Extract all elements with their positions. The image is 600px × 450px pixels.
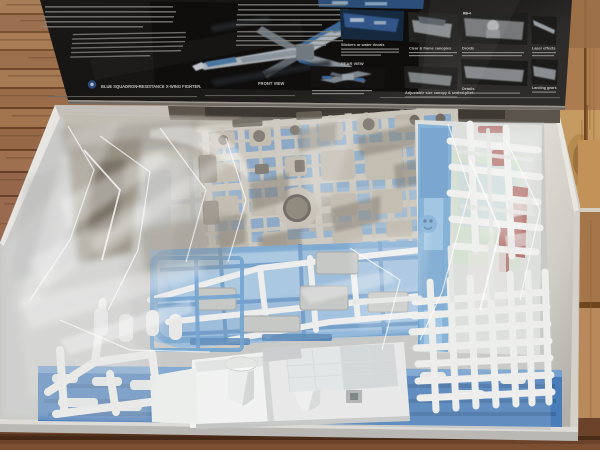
svg-text:Landing gears: Landing gears (532, 86, 557, 90)
svg-text:REAR VIEW: REAR VIEW (341, 61, 364, 66)
svg-text:BLUE SQUADRON•RESISTANCE X-WIN: BLUE SQUADRON•RESISTANCE X-WING FIGHTER. (101, 84, 201, 89)
svg-text:FRONT VIEW: FRONT VIEW (258, 81, 284, 86)
svg-text:Stickers or water decals: Stickers or water decals (341, 43, 384, 47)
svg-text:Laser effects: Laser effects (532, 47, 555, 51)
